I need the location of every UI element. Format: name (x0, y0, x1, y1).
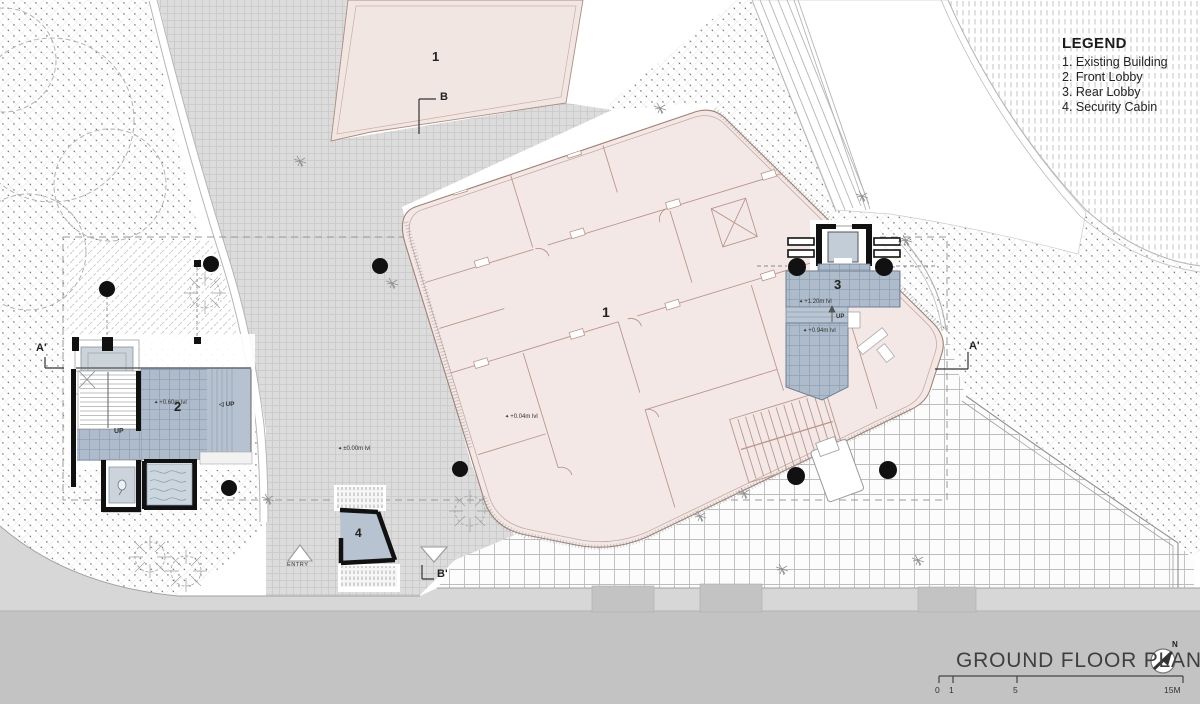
water-feature (142, 459, 200, 510)
level-marker-icon: ✦ (505, 414, 509, 420)
up-label-front-lobby: UP (114, 428, 124, 435)
up-label-rear-lobby: UP (836, 314, 844, 320)
level-rear-lower-text: +0.94m lvl (808, 328, 836, 334)
level-plaza-text: ±0.00m lvl (343, 446, 370, 452)
section-marker-b: B (440, 92, 448, 103)
legend-item-2: 2. Front Lobby (1062, 71, 1143, 84)
garden-diagonal-dash (67, 240, 240, 345)
room-label-security-cabin: 4 (355, 527, 362, 539)
level-rear-upper: ✦+1.20m lvl (799, 299, 832, 305)
scale-tick-1: 1 (949, 686, 954, 695)
room-label-building-top: 1 (432, 50, 439, 63)
entry-label: ENTRY (287, 563, 309, 569)
level-marker-icon: ✦ (799, 299, 803, 305)
up-label-ramp: ◁ UP (219, 402, 234, 409)
section-marker-b-prime: B' (437, 569, 448, 580)
level-marker-icon: ✦ (154, 400, 158, 406)
floor-plan-drawing (0, 0, 1200, 704)
ramp-arrow-icon: ◁ (219, 402, 224, 408)
legend-title: LEGEND (1062, 36, 1127, 51)
floor-plan-screenshot: LEGEND 1. Existing Building 2. Front Lob… (0, 0, 1200, 704)
level-marker-icon: ✦ (803, 328, 807, 334)
level-rear-upper-text: +1.20m lvl (804, 299, 832, 305)
room-label-rear-lobby: 3 (834, 278, 841, 291)
section-marker-a-prime-left: A' (36, 343, 47, 354)
section-marker-a-prime-right: A' (969, 341, 980, 352)
level-plaza: ✦±0.00m lvl (338, 446, 371, 452)
legend-item-3: 3. Rear Lobby (1062, 86, 1141, 99)
scale-tick-0: 0 (935, 686, 940, 695)
level-marker-icon: ✦ (338, 446, 342, 452)
legend-item-4: 4. Security Cabin (1062, 101, 1157, 114)
page-title: GROUND FLOOR PLAN (956, 650, 1200, 671)
level-front-lobby: ✦+0.60m lvl (154, 400, 187, 406)
level-building-text: +0.04m lvl (510, 414, 538, 420)
scale-tick-15: 15M (1164, 686, 1181, 695)
scale-tick-5: 5 (1013, 686, 1018, 695)
north-label: N (1172, 641, 1178, 649)
level-rear-lower: ✦+0.94m lvl (803, 328, 836, 334)
planter-room (101, 460, 141, 512)
front-lobby-stair (78, 371, 138, 429)
room-label-building-main: 1 (602, 305, 610, 319)
up-label-ramp-text: UP (225, 401, 234, 408)
level-building: ✦+0.04m lvl (505, 414, 538, 420)
legend-item-1: 1. Existing Building (1062, 56, 1168, 69)
level-front-lobby-text: +0.60m lvl (159, 400, 187, 406)
